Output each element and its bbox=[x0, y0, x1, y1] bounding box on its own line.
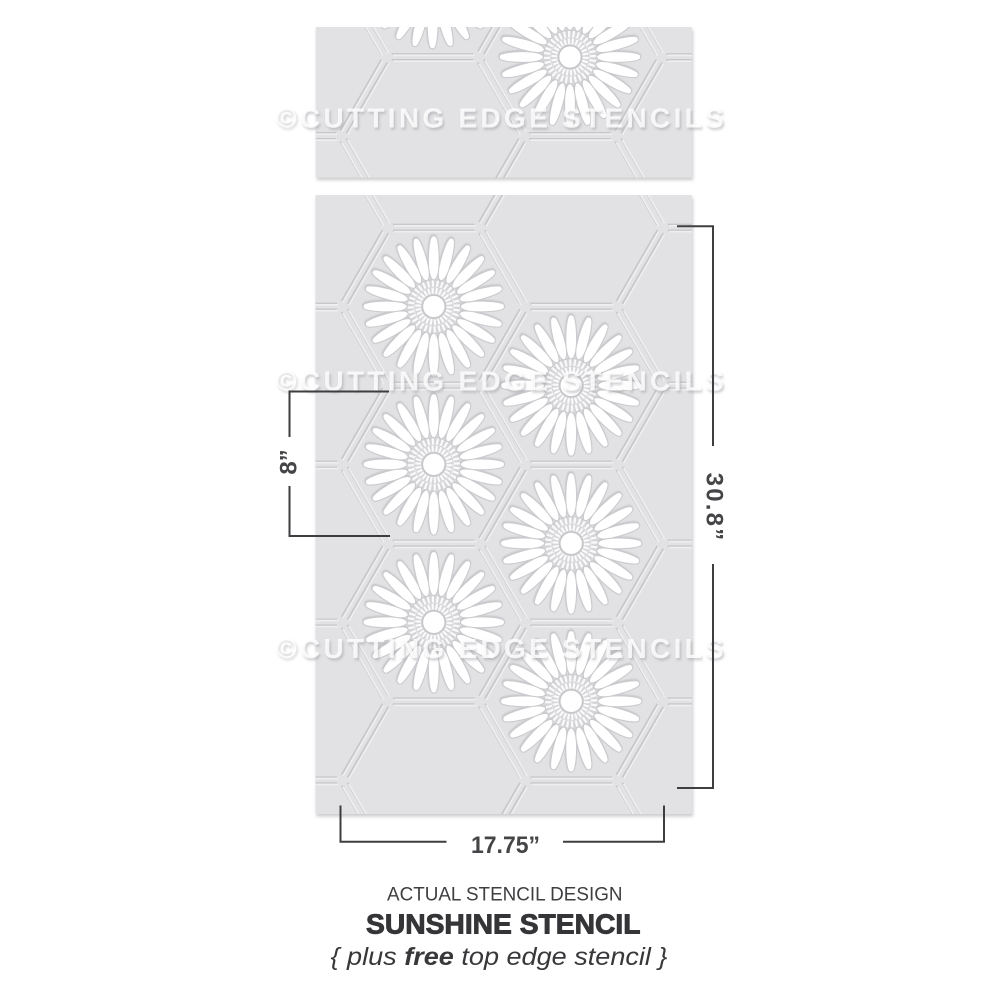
svg-text:8”: 8” bbox=[276, 449, 303, 474]
svg-text:{ plus free top edge stencil }: { plus free top edge stencil } bbox=[331, 943, 668, 971]
svg-text:©CUTTING EDGE STENCILS: ©CUTTING EDGE STENCILS bbox=[276, 102, 727, 133]
svg-text:30.8”: 30.8” bbox=[701, 473, 728, 543]
svg-text:©CUTTING EDGE STENCILS: ©CUTTING EDGE STENCILS bbox=[276, 633, 727, 664]
svg-text:ACTUAL STENCIL DESIGN: ACTUAL STENCIL DESIGN bbox=[387, 885, 623, 906]
svg-text:17.75”: 17.75” bbox=[471, 832, 540, 859]
svg-text:SUNSHINE STENCIL: SUNSHINE STENCIL bbox=[366, 909, 641, 940]
